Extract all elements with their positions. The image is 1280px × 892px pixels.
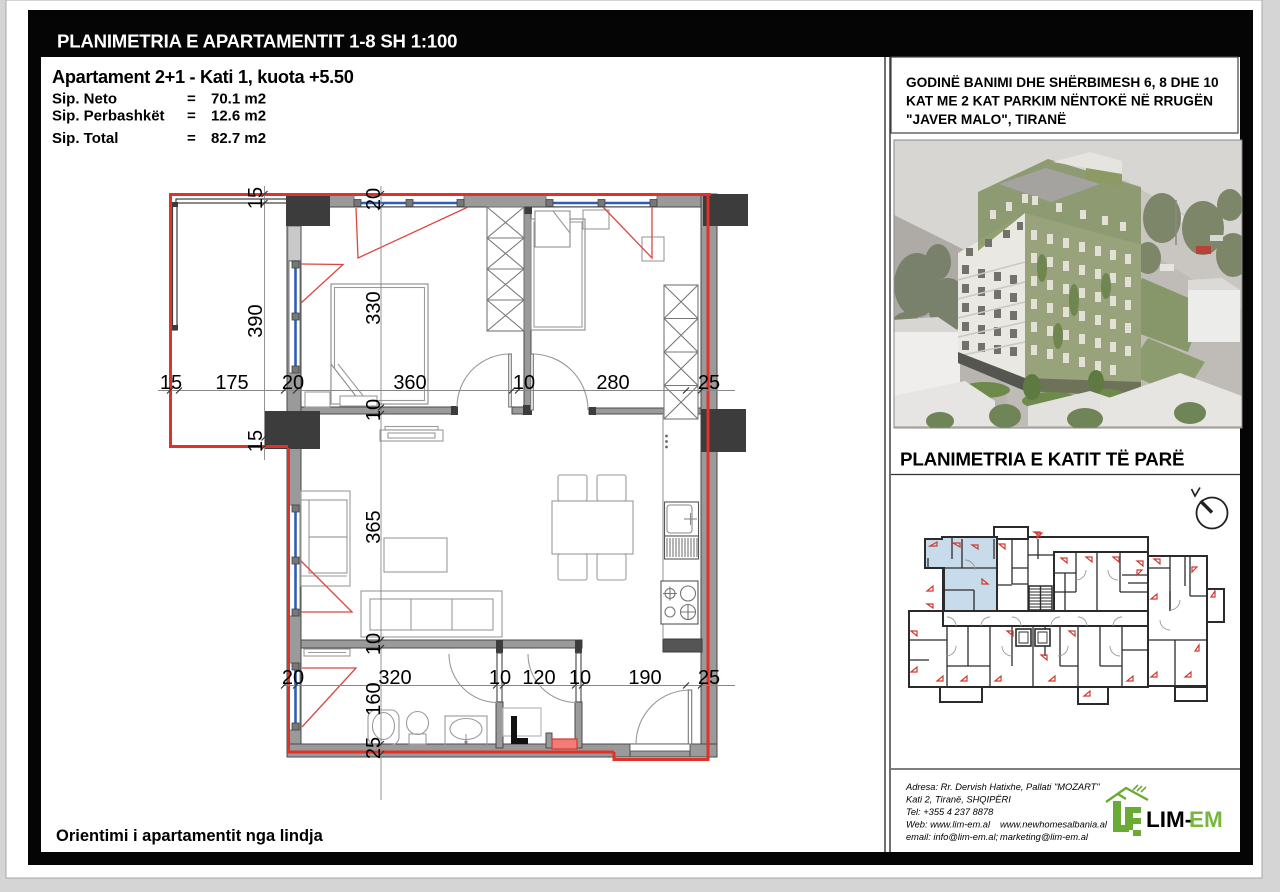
svg-text:Sip. Perbashkët: Sip. Perbashkët: [52, 108, 165, 125]
svg-text:GODINË BANIMI DHE SHËRBIMESH 6: GODINË BANIMI DHE SHËRBIMESH 6, 8 DHE 10: [906, 75, 1219, 90]
svg-text:Kati 2, Tiranë, SHQIPËRI: Kati 2, Tiranë, SHQIPËRI: [906, 795, 1011, 805]
svg-text:160: 160: [363, 682, 385, 715]
svg-text:=: =: [187, 130, 196, 147]
svg-text:marketing@lim-em.al: marketing@lim-em.al: [1000, 832, 1089, 842]
svg-text:280: 280: [596, 372, 629, 394]
svg-text:20: 20: [282, 372, 304, 394]
svg-text:20: 20: [282, 667, 304, 689]
svg-text:12.6 m2: 12.6 m2: [211, 108, 266, 125]
svg-text:365: 365: [363, 510, 385, 543]
svg-text:25: 25: [698, 372, 720, 394]
svg-text:PLANIMETRIA E KATIT TË PARË: PLANIMETRIA E KATIT TË PARË: [900, 449, 1184, 470]
svg-text:330: 330: [363, 291, 385, 324]
svg-text:Web: www.lim-em.al: Web: www.lim-em.al: [906, 820, 991, 830]
svg-text:10: 10: [513, 372, 535, 394]
svg-text:15: 15: [160, 372, 182, 394]
svg-text:82.7 m2: 82.7 m2: [211, 130, 266, 147]
svg-text:Adresa: Rr. Dervish Hatixhe, P: Adresa: Rr. Dervish Hatixhe, Pallati "MO…: [905, 782, 1100, 792]
svg-text:15: 15: [245, 430, 267, 452]
svg-text:Sip. Total: Sip. Total: [52, 130, 118, 147]
svg-text:120: 120: [522, 667, 555, 689]
svg-text:LIM-: LIM-: [1146, 807, 1192, 832]
svg-text:25: 25: [698, 667, 720, 689]
svg-text:EM: EM: [1189, 807, 1223, 832]
svg-text:190: 190: [628, 667, 661, 689]
svg-text:Apartament 2+1 - Kati 1, kuota: Apartament 2+1 - Kati 1, kuota +5.50: [52, 67, 354, 87]
svg-text:KAT ME 2 KAT PARKIM NËNTOKË NË: KAT ME 2 KAT PARKIM NËNTOKË NË RRUGËN: [906, 94, 1213, 109]
svg-text:Tel: +355 4 237 8878: Tel: +355 4 237 8878: [906, 807, 994, 817]
svg-text:10: 10: [489, 667, 511, 689]
svg-text:360: 360: [393, 372, 426, 394]
svg-text:10: 10: [569, 667, 591, 689]
svg-text:"JAVER MALO", TIRANË: "JAVER MALO", TIRANË: [906, 112, 1066, 127]
svg-text:70.1 m2: 70.1 m2: [211, 91, 266, 108]
svg-text:=: =: [187, 91, 196, 108]
svg-text:15: 15: [245, 187, 267, 209]
svg-text:25: 25: [363, 737, 385, 759]
svg-text:175: 175: [215, 372, 248, 394]
svg-text:20: 20: [363, 188, 385, 210]
svg-text:www.newhomesalbania.al: www.newhomesalbania.al: [1000, 820, 1108, 830]
svg-text:Sip. Neto: Sip. Neto: [52, 91, 117, 108]
svg-text:Orientimi i apartamentit nga l: Orientimi i apartamentit nga lindja: [56, 827, 324, 845]
svg-text:=: =: [187, 108, 196, 125]
svg-text:10: 10: [363, 399, 385, 421]
svg-text:PLANIMETRIA E APARTAMENTIT 1-8: PLANIMETRIA E APARTAMENTIT 1-8 SH 1:100: [57, 31, 457, 52]
svg-text:email: info@lim-em.al;: email: info@lim-em.al;: [906, 832, 999, 842]
svg-text:390: 390: [245, 304, 267, 337]
svg-text:10: 10: [363, 633, 385, 655]
